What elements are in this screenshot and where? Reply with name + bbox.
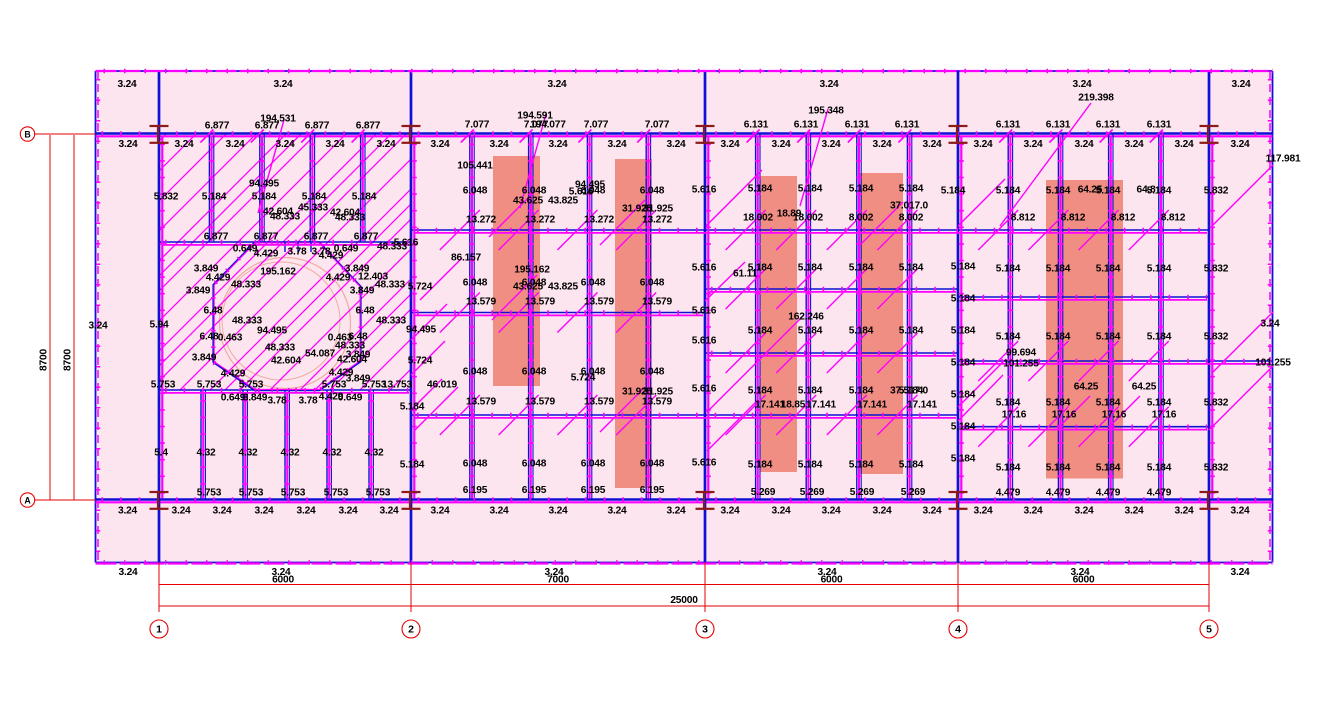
svg-text:48.333: 48.333 [265,343,295,354]
svg-text:3.24: 3.24 [1023,506,1043,517]
svg-text:4.32: 4.32 [196,448,216,459]
svg-text:4.429: 4.429 [326,273,351,284]
svg-text:5.184: 5.184 [798,326,823,337]
svg-text:5.832: 5.832 [1204,398,1229,409]
svg-text:4.479: 4.479 [1147,488,1172,499]
svg-text:2: 2 [408,624,414,636]
svg-text:5.184: 5.184 [1147,398,1172,409]
svg-text:5.184: 5.184 [1147,332,1172,343]
svg-text:6000: 6000 [1073,574,1095,585]
svg-text:18.85: 18.85 [781,400,806,411]
svg-text:8.812: 8.812 [1061,213,1086,224]
svg-text:54.087: 54.087 [305,349,335,360]
svg-text:5.94: 5.94 [149,320,169,331]
svg-text:6.131: 6.131 [794,120,819,131]
svg-text:5.269: 5.269 [901,487,926,498]
svg-text:45.333: 45.333 [298,203,328,214]
svg-text:5.184: 5.184 [252,192,277,203]
svg-text:3.24: 3.24 [379,506,399,517]
svg-text:5.832: 5.832 [1204,332,1229,343]
svg-text:6.48: 6.48 [355,306,375,317]
svg-text:46.019: 46.019 [427,380,457,391]
svg-text:5.753: 5.753 [366,488,391,499]
svg-text:6.048: 6.048 [463,186,488,197]
svg-text:195.162: 195.162 [260,267,296,278]
svg-text:8.812: 8.812 [1161,213,1186,224]
svg-text:6.195: 6.195 [581,485,606,496]
svg-text:3.78: 3.78 [267,396,287,407]
svg-text:117.981: 117.981 [1266,154,1301,165]
svg-text:8.002: 8.002 [849,213,874,224]
svg-text:5.184: 5.184 [1046,463,1071,474]
svg-text:13.579: 13.579 [525,397,555,408]
svg-text:5.184: 5.184 [899,326,924,337]
svg-text:5.184: 5.184 [748,386,773,397]
svg-text:A: A [24,495,31,505]
svg-text:3.24: 3.24 [212,506,232,517]
svg-text:6.131: 6.131 [1046,120,1071,131]
svg-text:3: 3 [702,624,708,636]
svg-text:3.24: 3.24 [1124,139,1144,150]
svg-text:3.24: 3.24 [338,506,358,517]
svg-text:5.184: 5.184 [996,398,1021,409]
svg-text:64.8: 64.8 [1136,185,1156,196]
svg-text:3.24: 3.24 [922,506,942,517]
svg-text:5.184: 5.184 [996,264,1021,275]
svg-text:5.184: 5.184 [352,192,377,203]
svg-text:6.048: 6.048 [581,367,606,378]
svg-text:3.24: 3.24 [118,506,138,517]
svg-text:17.141: 17.141 [806,400,836,411]
svg-text:3.24: 3.24 [666,139,686,150]
svg-text:6.048: 6.048 [640,459,665,470]
svg-text:3.24: 3.24 [118,139,138,150]
svg-text:5.184: 5.184 [798,184,823,195]
svg-text:7.077: 7.077 [645,120,670,131]
svg-text:6.877: 6.877 [305,121,330,132]
svg-text:7.077: 7.077 [584,120,609,131]
svg-text:5.753: 5.753 [151,380,176,391]
svg-text:3.24: 3.24 [819,79,839,90]
svg-text:5.184: 5.184 [202,192,227,203]
svg-text:17.16: 17.16 [1002,410,1027,421]
svg-text:3.24: 3.24 [1074,139,1094,150]
svg-text:5.184: 5.184 [748,460,773,471]
svg-text:6.048: 6.048 [640,278,665,289]
svg-text:3.78: 3.78 [298,396,318,407]
svg-text:13.272: 13.272 [466,215,496,226]
svg-text:6.048: 6.048 [522,459,547,470]
svg-text:3.24: 3.24 [88,321,108,332]
svg-text:5.753: 5.753 [324,488,349,499]
svg-text:3.24: 3.24 [872,139,892,150]
svg-text:13.579: 13.579 [466,397,496,408]
svg-text:5.184: 5.184 [302,192,327,203]
svg-text:13.272: 13.272 [525,215,555,226]
svg-text:17.16: 17.16 [1102,410,1127,421]
svg-text:5.184: 5.184 [951,390,976,401]
svg-text:8700: 8700 [63,349,74,371]
svg-text:6.48: 6.48 [203,306,223,317]
svg-text:4.479: 4.479 [1046,488,1071,499]
svg-text:5.184: 5.184 [1046,398,1071,409]
svg-text:3.24: 3.24 [547,79,567,90]
svg-text:4: 4 [955,624,961,636]
svg-text:5.184: 5.184 [798,263,823,274]
svg-text:4.32: 4.32 [280,448,300,459]
svg-text:5.184: 5.184 [1096,264,1121,275]
svg-text:6.877: 6.877 [205,121,230,132]
svg-text:13.579: 13.579 [642,397,672,408]
svg-text:17.141: 17.141 [907,400,937,411]
svg-text:1: 1 [156,624,162,636]
svg-text:94.495: 94.495 [406,325,436,336]
svg-text:13.272: 13.272 [584,215,614,226]
svg-text:3.24: 3.24 [771,506,791,517]
svg-text:37.517.0: 37.517.0 [890,386,929,397]
svg-text:5.184: 5.184 [1046,264,1071,275]
svg-text:3.24: 3.24 [1174,139,1194,150]
svg-text:17.141: 17.141 [857,400,887,411]
svg-text:7000: 7000 [547,574,569,585]
svg-text:219.398: 219.398 [1078,93,1114,104]
svg-text:3.24: 3.24 [1231,79,1251,90]
svg-text:3.24: 3.24 [296,506,316,517]
svg-text:5.184: 5.184 [849,386,874,397]
svg-text:3.24: 3.24 [117,79,137,90]
svg-text:6.131: 6.131 [1096,120,1121,131]
svg-text:101.255: 101.255 [1003,359,1039,370]
svg-text:3.24: 3.24 [273,79,293,90]
svg-text:4.429: 4.429 [221,369,246,380]
svg-text:6.877: 6.877 [354,232,379,243]
svg-text:5.832: 5.832 [154,192,179,203]
svg-text:5.184: 5.184 [941,186,966,197]
svg-text:5.724: 5.724 [408,356,433,367]
svg-text:99.694: 99.694 [1006,348,1036,359]
svg-text:5.184: 5.184 [1046,186,1071,197]
svg-text:3.849: 3.849 [243,393,268,404]
svg-text:17.16: 17.16 [1152,410,1177,421]
svg-text:3.24: 3.24 [720,506,740,517]
svg-text:3.24: 3.24 [1074,506,1094,517]
svg-text:5.184: 5.184 [1046,332,1071,343]
svg-text:5.269: 5.269 [800,487,825,498]
svg-text:42.604: 42.604 [271,356,301,367]
svg-text:4.429: 4.429 [254,249,279,260]
svg-text:6.877: 6.877 [356,121,381,132]
svg-text:3.24: 3.24 [607,139,627,150]
svg-text:6.048: 6.048 [581,186,606,197]
svg-text:101.255: 101.255 [1255,358,1291,369]
svg-text:3.849: 3.849 [186,286,211,297]
svg-text:5.184: 5.184 [798,460,823,471]
svg-text:13.272: 13.272 [642,215,672,226]
svg-text:3.24: 3.24 [1230,506,1250,517]
svg-text:6.131: 6.131 [996,120,1021,131]
svg-text:6.877: 6.877 [304,232,329,243]
svg-text:48.333: 48.333 [270,212,300,223]
svg-text:6.048: 6.048 [522,278,547,289]
svg-text:6.131: 6.131 [895,120,920,131]
svg-text:3.78: 3.78 [287,247,307,258]
svg-text:5.184: 5.184 [1147,463,1172,474]
svg-text:3.24: 3.24 [1230,139,1250,150]
svg-text:5.269: 5.269 [850,487,875,498]
svg-text:0.463: 0.463 [218,333,243,344]
svg-text:5.184: 5.184 [849,326,874,337]
svg-text:43.825: 43.825 [548,196,578,207]
svg-text:48.333: 48.333 [375,280,405,291]
svg-text:5.616: 5.616 [692,458,717,469]
svg-text:6000: 6000 [821,574,843,585]
svg-text:48.333: 48.333 [335,213,365,224]
svg-text:0.649: 0.649 [338,393,363,404]
svg-text:3.24: 3.24 [1023,139,1043,150]
svg-text:5.753: 5.753 [281,488,306,499]
svg-text:6.048: 6.048 [581,278,606,289]
svg-text:8.812: 8.812 [1111,213,1136,224]
svg-text:5.184: 5.184 [1096,463,1121,474]
svg-text:13.579: 13.579 [525,297,555,308]
svg-text:18.002: 18.002 [743,213,773,224]
svg-text:13.579: 13.579 [584,397,614,408]
svg-text:5.832: 5.832 [1204,186,1229,197]
svg-text:5.616: 5.616 [692,185,717,196]
svg-text:5.184: 5.184 [849,460,874,471]
svg-text:5.184: 5.184 [1096,332,1121,343]
svg-text:3.24: 3.24 [254,506,274,517]
svg-text:195.162: 195.162 [514,265,550,276]
svg-text:3.24: 3.24 [171,506,191,517]
svg-text:8.002: 8.002 [899,213,924,224]
svg-text:194.531: 194.531 [260,114,296,125]
svg-text:6.048: 6.048 [463,459,488,470]
svg-text:5.184: 5.184 [1096,398,1121,409]
svg-text:4.429: 4.429 [319,251,344,262]
svg-text:13.753: 13.753 [382,380,412,391]
svg-text:3.24: 3.24 [118,567,138,578]
svg-text:4.479: 4.479 [996,488,1021,499]
svg-text:5.184: 5.184 [748,184,773,195]
svg-text:6.195: 6.195 [640,485,665,496]
svg-text:31.925: 31.925 [643,387,673,398]
svg-text:5.4: 5.4 [154,448,168,459]
svg-text:3.849: 3.849 [192,353,217,364]
svg-text:17.16: 17.16 [1052,410,1077,421]
svg-text:3.24: 3.24 [430,139,450,150]
svg-text:3.24: 3.24 [174,139,194,150]
svg-text:3.24: 3.24 [666,506,686,517]
svg-text:194.077: 194.077 [530,120,566,131]
svg-text:5.753: 5.753 [239,488,264,499]
svg-text:42.604: 42.604 [337,355,367,366]
svg-text:64.25: 64.25 [1074,382,1099,393]
svg-text:4.479: 4.479 [1096,488,1121,499]
svg-text:5.184: 5.184 [899,263,924,274]
svg-text:4.32: 4.32 [364,448,384,459]
svg-text:6000: 6000 [272,574,294,585]
svg-text:5.753: 5.753 [239,380,264,391]
svg-text:5.184: 5.184 [748,263,773,274]
svg-text:86.157: 86.157 [451,253,481,264]
svg-text:6.131: 6.131 [744,120,769,131]
svg-text:7.077: 7.077 [465,120,490,131]
svg-text:6.877: 6.877 [204,232,229,243]
svg-text:3.24: 3.24 [1124,506,1144,517]
svg-text:5.724: 5.724 [408,282,433,293]
svg-text:3.24: 3.24 [275,139,295,150]
svg-text:5.184: 5.184 [748,326,773,337]
svg-text:5.184: 5.184 [899,460,924,471]
svg-text:3.24: 3.24 [821,506,841,517]
svg-text:6.131: 6.131 [845,120,870,131]
svg-text:43.625: 43.625 [513,196,543,207]
svg-text:5.184: 5.184 [996,463,1021,474]
svg-text:5.184: 5.184 [798,386,823,397]
svg-text:5.184: 5.184 [996,332,1021,343]
svg-text:5.184: 5.184 [951,262,976,273]
svg-text:3.24: 3.24 [325,139,345,150]
svg-text:6.877: 6.877 [254,232,279,243]
svg-text:64.25: 64.25 [1078,185,1103,196]
svg-text:5.616: 5.616 [692,384,717,395]
svg-text:43.825: 43.825 [548,282,578,293]
svg-text:94.495: 94.495 [249,179,279,190]
svg-text:3.24: 3.24 [1260,319,1280,330]
svg-text:5.184: 5.184 [400,460,425,471]
svg-text:5.616: 5.616 [692,336,717,347]
svg-text:3.24: 3.24 [922,139,942,150]
svg-text:3.24: 3.24 [489,139,509,150]
svg-text:31.925: 31.925 [643,204,673,215]
svg-text:6.048: 6.048 [640,367,665,378]
svg-text:5.184: 5.184 [951,294,976,305]
svg-text:5.753: 5.753 [322,380,347,391]
svg-text:5.269: 5.269 [751,487,776,498]
svg-text:6.195: 6.195 [522,485,547,496]
svg-text:3.24: 3.24 [376,139,396,150]
svg-text:13.579: 13.579 [584,297,614,308]
svg-text:25000: 25000 [670,595,698,606]
svg-text:5.616: 5.616 [692,263,717,274]
svg-text:5.184: 5.184 [951,358,976,369]
svg-text:3.24: 3.24 [1230,567,1250,578]
svg-text:3.24: 3.24 [489,506,509,517]
svg-text:3.24: 3.24 [973,139,993,150]
svg-text:5.184: 5.184 [849,184,874,195]
svg-text:6.195: 6.195 [463,485,488,496]
svg-text:4.32: 4.32 [238,448,258,459]
svg-text:13.579: 13.579 [466,297,496,308]
svg-text:4.32: 4.32 [322,448,342,459]
svg-text:37.017.0: 37.017.0 [890,201,929,212]
svg-text:8.812: 8.812 [1011,213,1036,224]
svg-text:6.048: 6.048 [522,367,547,378]
svg-text:13.579: 13.579 [642,297,672,308]
svg-text:18.89: 18.89 [777,209,802,220]
svg-text:3.849: 3.849 [350,286,375,297]
svg-text:5.184: 5.184 [899,184,924,195]
svg-text:8700: 8700 [39,349,50,371]
svg-text:3.24: 3.24 [225,139,245,150]
svg-text:5.753: 5.753 [197,380,222,391]
svg-text:5.184: 5.184 [1147,264,1172,275]
svg-text:6.048: 6.048 [581,459,606,470]
svg-text:48.333: 48.333 [376,316,406,327]
svg-text:195.348: 195.348 [808,106,844,117]
svg-text:4.429: 4.429 [206,273,231,284]
svg-text:6.048: 6.048 [463,278,488,289]
svg-text:6.131: 6.131 [1147,120,1172,131]
svg-text:6.048: 6.048 [640,186,665,197]
svg-text:3.24: 3.24 [548,506,568,517]
svg-text:48.333: 48.333 [231,280,261,291]
svg-text:3.24: 3.24 [430,506,450,517]
svg-text:105.441: 105.441 [457,161,493,172]
svg-text:3.24: 3.24 [1174,506,1194,517]
svg-text:64.25: 64.25 [1132,382,1157,393]
svg-text:5: 5 [1206,624,1212,636]
svg-text:3.24: 3.24 [720,139,740,150]
svg-text:5.753: 5.753 [197,488,222,499]
svg-text:3.24: 3.24 [1072,79,1092,90]
svg-text:5.616: 5.616 [692,306,717,317]
svg-text:6.48: 6.48 [199,332,219,343]
svg-text:94.495: 94.495 [257,326,287,337]
svg-text:5.184: 5.184 [996,186,1021,197]
svg-text:5.184: 5.184 [951,454,976,465]
svg-text:5.184: 5.184 [951,422,976,433]
svg-text:3.24: 3.24 [973,506,993,517]
svg-text:5.832: 5.832 [1204,264,1229,275]
svg-text:162.246: 162.246 [788,312,824,323]
svg-text:3.24: 3.24 [548,139,568,150]
svg-text:3.24: 3.24 [771,139,791,150]
svg-text:3.24: 3.24 [607,506,627,517]
svg-text:5.184: 5.184 [951,326,976,337]
svg-text:5.832: 5.832 [1204,463,1229,474]
svg-text:3.24: 3.24 [821,139,841,150]
svg-text:3.24: 3.24 [872,506,892,517]
svg-text:5.184: 5.184 [400,402,425,413]
svg-text:6.048: 6.048 [463,367,488,378]
svg-text:5.616: 5.616 [394,238,419,249]
svg-text:B: B [24,129,30,139]
svg-text:5.184: 5.184 [849,263,874,274]
